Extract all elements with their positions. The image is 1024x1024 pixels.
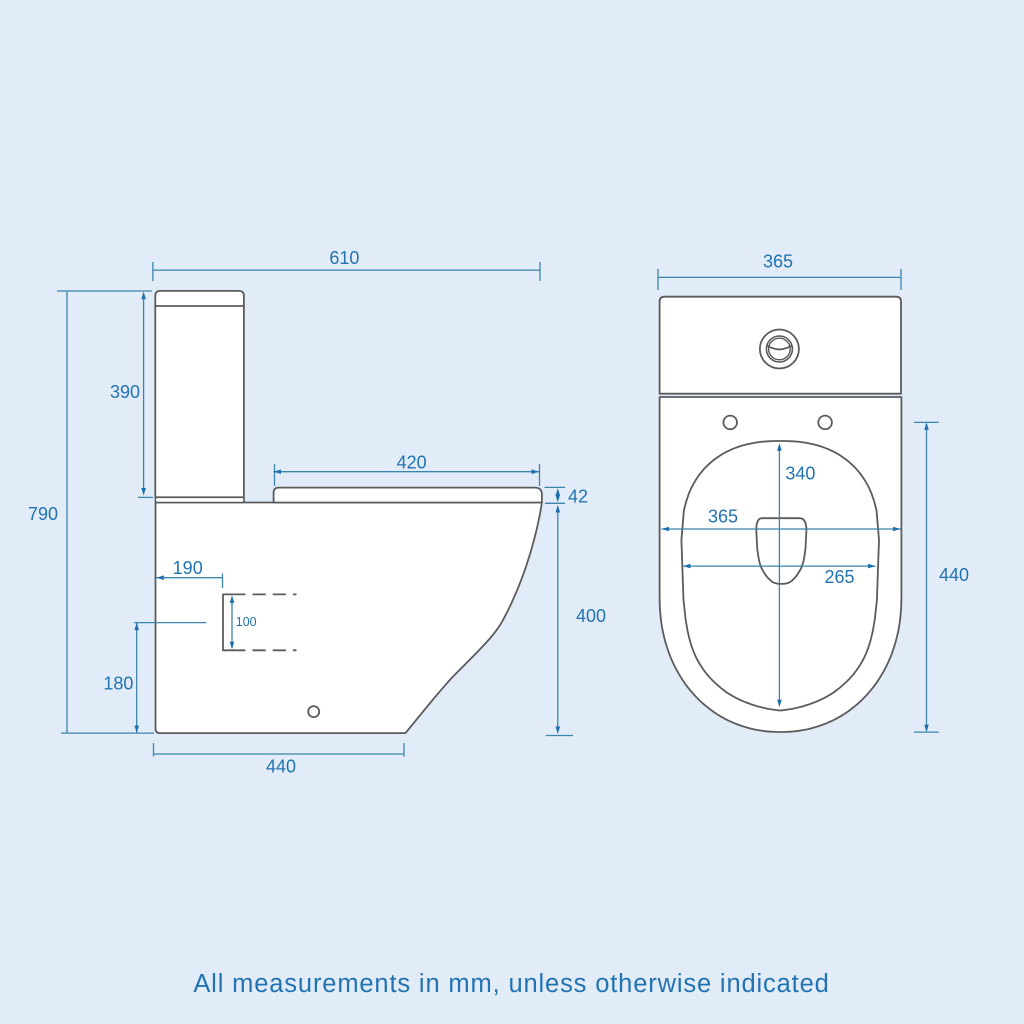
svg-text:180: 180: [103, 674, 133, 694]
svg-text:790: 790: [28, 504, 58, 524]
svg-text:420: 420: [397, 453, 427, 473]
svg-text:42: 42: [568, 487, 588, 507]
svg-text:265: 265: [824, 567, 854, 587]
svg-text:440: 440: [266, 757, 296, 777]
svg-text:190: 190: [173, 558, 203, 578]
svg-text:400: 400: [576, 606, 606, 626]
svg-text:100: 100: [236, 615, 257, 629]
svg-text:390: 390: [110, 382, 140, 402]
svg-text:365: 365: [763, 252, 793, 272]
svg-text:All measurements in mm, unless: All measurements in mm, unless otherwise…: [193, 970, 829, 998]
svg-text:340: 340: [785, 464, 815, 484]
svg-text:610: 610: [329, 248, 359, 268]
svg-text:440: 440: [939, 565, 969, 585]
svg-text:365: 365: [708, 507, 738, 527]
